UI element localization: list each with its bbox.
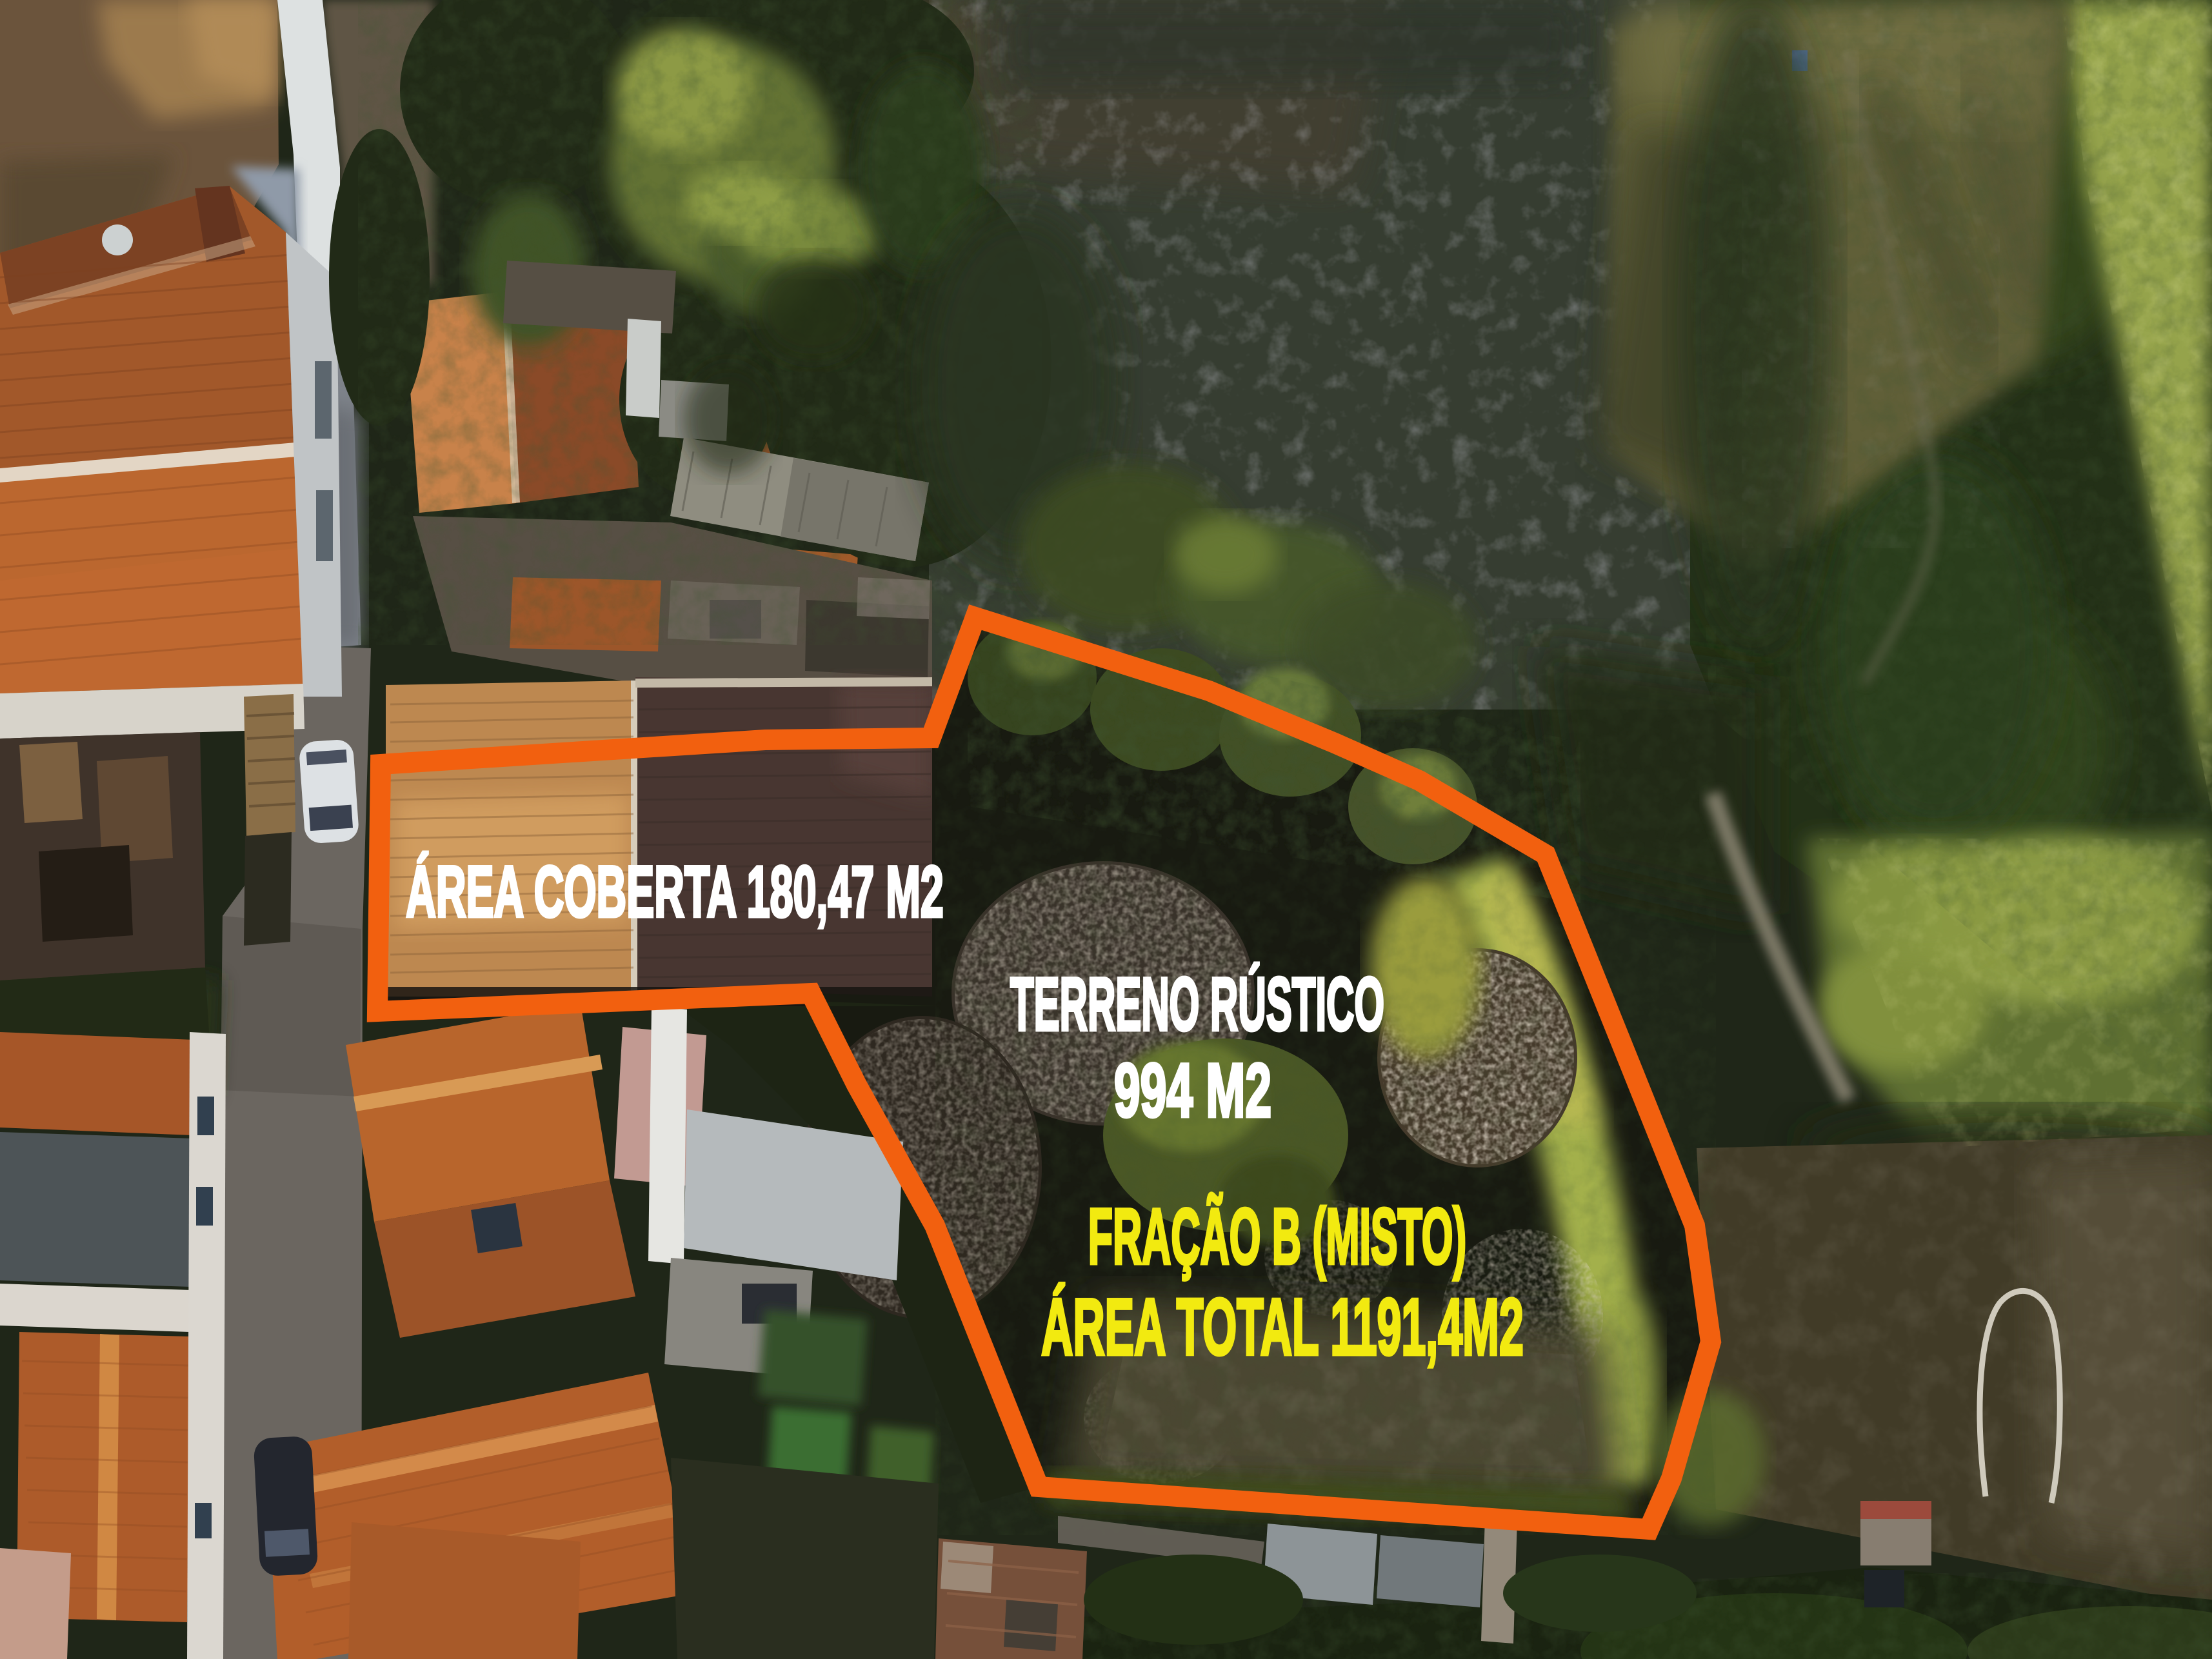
svg-text:FRAÇÃO B (MISTO): FRAÇÃO B (MISTO) bbox=[1088, 1192, 1467, 1280]
svg-text:TERRENO RÚSTICO: TERRENO RÚSTICO bbox=[1010, 962, 1384, 1046]
svg-text:ÁREA COBERTA 180,47 M2: ÁREA COBERTA 180,47 M2 bbox=[406, 852, 944, 933]
svg-text:994 M2: 994 M2 bbox=[1114, 1048, 1271, 1133]
svg-text:ÁREA TOTAL 1191,4M2: ÁREA TOTAL 1191,4M2 bbox=[1041, 1282, 1524, 1372]
